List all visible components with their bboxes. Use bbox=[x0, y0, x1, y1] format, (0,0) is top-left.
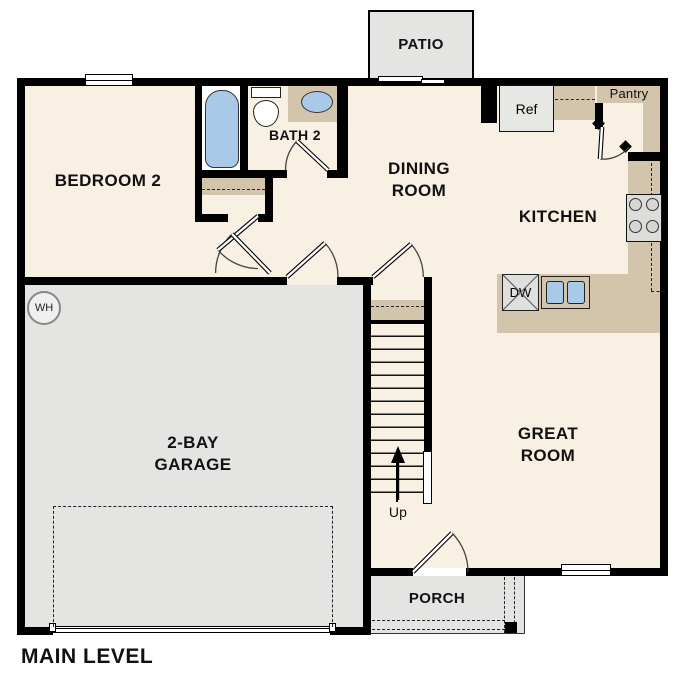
floor-plan: WH Ref DW BEDROOM 2 BATH 2 bbox=[0, 0, 687, 687]
toilet-icon bbox=[251, 87, 281, 98]
wall bbox=[258, 214, 273, 222]
refrigerator-icon: Ref bbox=[499, 85, 554, 132]
burner-icon bbox=[629, 198, 642, 211]
wall bbox=[195, 86, 202, 222]
closet-rod-dash bbox=[371, 306, 424, 307]
wall bbox=[363, 285, 371, 627]
wall bbox=[17, 627, 53, 635]
entry-closet-front-wall bbox=[371, 320, 424, 324]
kitchen-label: KITCHEN bbox=[498, 206, 618, 228]
water-heater-icon: WH bbox=[27, 291, 61, 325]
great-room-label: GREAT ROOM bbox=[498, 423, 598, 467]
sliding-door-panel bbox=[421, 79, 445, 84]
water-heater-label: WH bbox=[35, 302, 53, 314]
wall bbox=[337, 78, 348, 178]
dishwasher-label: DW bbox=[509, 285, 533, 300]
bath2-label: BATH 2 bbox=[255, 126, 335, 144]
stairs-up-label: Up bbox=[383, 503, 413, 521]
bath-sink-icon bbox=[301, 91, 333, 113]
stairs-center-rail bbox=[396, 454, 398, 502]
sliding-door-panel bbox=[378, 76, 423, 82]
patio-label: PATIO bbox=[371, 35, 471, 55]
bedroom2-label: BEDROOM 2 bbox=[28, 170, 188, 192]
counter-dash bbox=[651, 291, 665, 292]
wall bbox=[466, 568, 563, 576]
porch-label: PORCH bbox=[387, 589, 487, 609]
pantry-label: Pantry bbox=[598, 86, 660, 103]
wall bbox=[330, 627, 371, 635]
garage-label: 2-BAY GARAGE bbox=[133, 432, 253, 476]
level-title: MAIN LEVEL bbox=[21, 643, 221, 670]
wall bbox=[481, 78, 497, 123]
burner-icon bbox=[646, 198, 659, 211]
garage-door-swing-dash bbox=[53, 506, 333, 627]
wall bbox=[628, 152, 668, 161]
porch-post bbox=[505, 622, 517, 633]
wall bbox=[195, 214, 228, 222]
wall bbox=[240, 86, 248, 171]
sink-basin-icon bbox=[546, 281, 564, 304]
wall bbox=[337, 277, 373, 285]
porch-edge-dash bbox=[372, 620, 505, 621]
porch-edge-dash bbox=[372, 629, 505, 630]
burner-icon bbox=[629, 220, 642, 233]
garage-door bbox=[52, 626, 333, 633]
cabinet-dash bbox=[555, 99, 595, 100]
dishwasher-icon: DW bbox=[502, 274, 539, 311]
dining-room-label: DINING ROOM bbox=[369, 158, 469, 202]
wall bbox=[610, 568, 668, 576]
refrigerator-label: Ref bbox=[516, 101, 538, 117]
bedroom-closet-shelf bbox=[202, 177, 265, 195]
stairs-railing bbox=[423, 451, 432, 504]
window bbox=[85, 74, 133, 86]
burner-icon bbox=[646, 220, 659, 233]
entry-closet-shelf bbox=[371, 300, 424, 320]
closet-rod-dash bbox=[202, 189, 265, 190]
pantry-shelf-side bbox=[643, 103, 660, 153]
kitchen-counter-ref bbox=[553, 86, 595, 120]
bathtub-icon bbox=[205, 90, 239, 168]
wall bbox=[424, 277, 432, 452]
sink-basin-icon bbox=[567, 281, 585, 304]
window bbox=[561, 564, 611, 576]
wall bbox=[195, 170, 287, 178]
wall bbox=[17, 78, 25, 635]
wall bbox=[17, 277, 287, 285]
